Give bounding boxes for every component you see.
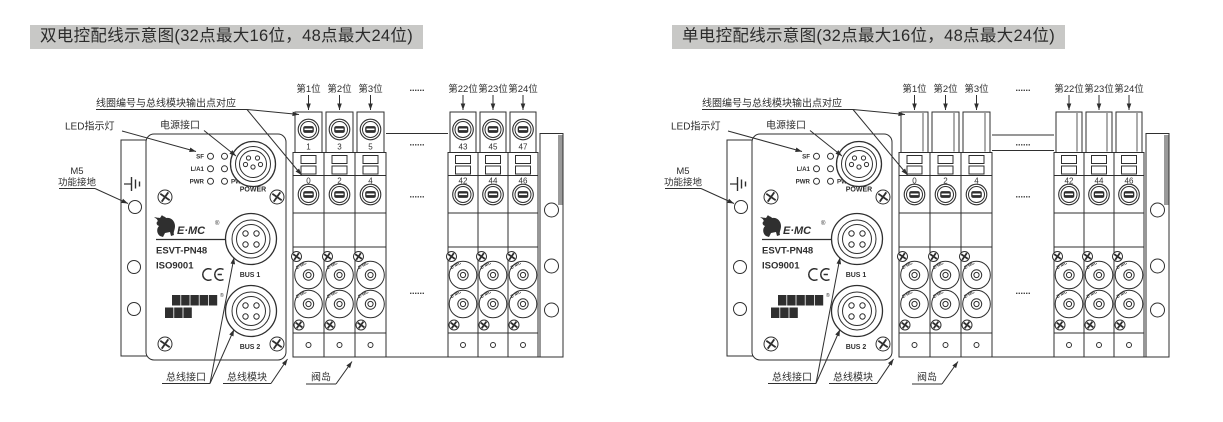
continuation-dots: ...... [1015,286,1030,296]
logo-letter: O [798,298,804,305]
station-coil-number-top: 47 [519,143,528,152]
diagram-title-single: 单电控配线示意图(32点最大16位，48点最大24位) [672,25,1065,49]
screw-icon [294,320,304,330]
manual-override-connector [1059,184,1080,205]
indicator-window [1122,166,1137,174]
bus-module: SFBFL/A1L/A2PWRPWMPOWERE·MC®ESVT-PN48ISO… [121,134,286,360]
manual-override-connector [360,184,381,205]
arrow-head [912,104,917,111]
page: 双电控配线示意图(32点最大16位，48点最大24位) 单电控配线示意图(32点… [0,0,1223,422]
screw-icon [1085,320,1095,330]
end-plate-hole [545,303,559,317]
logo-letter: F [202,298,207,305]
mounting-strip [899,333,992,357]
fieldbus-logo-word: PROFI [172,295,217,306]
indicator-window [332,166,347,174]
led-label-left: SF [196,154,204,161]
screw-icon [270,337,284,351]
screw-icon [158,337,172,351]
logo-letter: E [176,311,181,318]
station-coil-number-top: 43 [459,143,468,152]
coil-note-leader [247,110,299,115]
indicator-window [938,156,953,164]
screw-icon [354,252,364,262]
screw-icon [764,337,778,351]
screw-icon [477,252,487,262]
bus-module: SFBFL/A1L/A2PWRPWMPOWERE·MC®ESVT-PN48ISO… [727,134,892,360]
position-label-row: 第1位第2位第3位......第22位第23位第24位 [296,83,538,110]
screw-icon [356,320,366,330]
manual-override-connector [329,184,350,205]
circle [231,142,276,187]
screw-icon [900,320,910,330]
bracket-hole [128,303,141,316]
arrow-head [888,359,894,366]
circle [837,142,882,187]
indicator-window [486,166,501,174]
manual-override-connector [483,119,504,140]
arrow-head [1067,104,1072,111]
bracket-hole [128,261,141,274]
logo-letter: T [791,311,796,318]
led-label-left: PWR [796,179,811,186]
position-label: 第1位 [296,83,321,95]
brand-logo-text: E·MC [783,225,812,237]
bus-label: BUS 1 [846,272,867,279]
screw-icon [509,320,519,330]
bus2-connector [226,286,277,337]
valve-tower [963,112,990,153]
model-label: ESVT-PN48 [762,246,813,257]
mounting-bracket [727,140,754,356]
circle [832,286,883,337]
power-connector [837,142,882,187]
logo-letter: P [780,298,785,305]
logo-letter: R [183,298,188,305]
position-label: 第24位 [1114,83,1144,95]
screw-icon [764,190,778,204]
screw-icon [292,252,302,262]
logo-letter: E [782,311,787,318]
fieldbus-logo-word: NET [165,308,192,319]
valve-tower [901,112,928,153]
mounting-strip [448,333,538,357]
station-coil-number-top: 45 [489,143,498,152]
power-connector [231,142,276,187]
station-coil-number-top: 1 [306,143,311,152]
position-label: 第23位 [1084,83,1114,95]
m5-callout-label: M5 [676,166,689,177]
valve-tower [932,112,959,153]
manual-override-connector [453,119,474,140]
manual-override-connector [904,184,925,205]
valve-island-callout-label: 阀岛 [311,371,331,384]
end-plate-shade [558,135,563,205]
bus1-connector [832,214,883,265]
position-label: 第22位 [448,83,478,95]
indicator-window [516,156,531,164]
indicator-window [907,156,922,164]
manual-override-connector [513,119,534,140]
end-plate-hole [1151,259,1165,273]
diagram-title-dual: 双电控配线示意图(32点最大16位，48点最大24位) [30,25,423,49]
arrow-head [368,104,373,111]
arrow-head [337,104,342,111]
fieldbus-reg-mark: ® [826,292,830,299]
indicator-window [363,166,378,174]
indicator-window [1122,156,1137,164]
manual-override-connector [483,184,504,205]
m5-callout-label2: 功能接地 [664,177,703,189]
m5-callout-label2: 功能接地 [58,177,97,189]
continuation-dots: ...... [409,190,424,200]
manual-override-connector [329,119,350,140]
screw-icon [1083,252,1093,262]
bus-label: BUS 1 [240,272,261,279]
led-label-left: L/A1 [797,166,811,173]
manual-override-connector [298,119,319,140]
screw-icon [449,320,459,330]
led-label-left: PWR [190,179,205,186]
logo-letter: R [789,298,794,305]
screw-icon [479,320,489,330]
position-label: 第24位 [508,83,538,95]
position-label: 第3位 [358,83,383,95]
screw-icon [960,252,970,262]
end-plate [1146,134,1169,358]
m5-ground-hole [735,201,748,214]
indicator-window [907,166,922,174]
continuation-dots: ...... [1015,138,1030,148]
bus1-connector [226,214,277,265]
wiring-diagram-single: ..................0E·MCE·MC2E·MCE·MC4E·M… [606,55,1218,422]
screw-icon [1055,320,1065,330]
circle [226,286,277,337]
screw-icon [1115,320,1125,330]
arrow-head [974,104,979,111]
indicator-window [1092,156,1107,164]
cert-label: ISO9001 [156,261,194,272]
coil-note-leader [853,110,905,115]
position-label: 第2位 [933,83,958,95]
manual-override-connector [966,184,987,205]
led-callout-label: LED指示灯 [671,120,720,133]
led-label-left: L/A1 [191,166,205,173]
position-label: 第3位 [964,83,989,95]
arrow-head [1127,104,1132,111]
indicator-window [1062,156,1077,164]
screw-icon [929,252,939,262]
position-label-row: 第1位第2位第3位......第22位第23位第24位 [902,83,1144,110]
continuation-dots: ...... [1015,83,1030,93]
screw-icon [876,337,890,351]
logo-letter: O [192,298,198,305]
mounting-strip [293,333,386,357]
led-callout-label: LED指示灯 [65,120,114,133]
manual-override-connector [1119,184,1140,205]
screw-icon [931,320,941,330]
screw-icon [158,190,172,204]
bus-port-callout-label: 总线接口 [772,371,812,384]
station-coil-number-top: 5 [368,143,373,152]
arrow-head [521,104,526,111]
screw-icon [898,252,908,262]
station-coil-number-top: 3 [337,143,342,152]
bus-port-callout-label: 总线接口 [166,371,206,384]
indicator-window [456,156,471,164]
circle [226,214,277,265]
position-label: 第23位 [478,83,508,95]
mounting-strip [1054,333,1144,357]
continuation-dots: ...... [1015,190,1030,200]
position-label: 第1位 [902,83,927,95]
arrow-head [306,104,311,111]
arrow-head [461,104,466,111]
arrow-head [1097,104,1102,111]
fieldbus-reg-mark: ® [220,292,224,299]
indicator-window [1062,166,1077,174]
indicator-window [301,166,316,174]
arrow-head [943,104,948,111]
screw-icon [325,320,335,330]
arrow-head [282,359,288,366]
arrow-head [491,104,496,111]
bracket-hole [734,261,747,274]
end-plate-shade [1164,135,1169,205]
continuation-dots: ...... [409,286,424,296]
valve-tower [1086,112,1112,153]
bracket-hole [734,303,747,316]
fieldbus-logo-word: NET [771,308,798,319]
m5-callout-label: M5 [70,166,83,177]
bus-module-callout-label: 总线模块 [833,371,873,384]
model-label: ESVT-PN48 [156,246,207,257]
indicator-window [969,166,984,174]
valve-tower [1116,112,1142,153]
bus2-connector [832,286,883,337]
power-callout-label: 电源接口 [766,119,806,132]
screw-icon [1113,252,1123,262]
end-plate-hole [1151,303,1165,317]
bus-label: BUS 2 [240,344,261,351]
manual-override-connector [513,184,534,205]
logo-letter: T [185,311,190,318]
valve-island-callout-label: 阀岛 [917,371,937,384]
brand-reg-mark: ® [215,220,220,227]
mounting-bracket [121,140,148,356]
end-plate [540,134,563,358]
continuation-dots: ...... [409,83,424,93]
brand-logo-text: E·MC [177,225,206,237]
screw-icon [270,190,284,204]
manual-override-connector [453,184,474,205]
indicator-window [969,156,984,164]
logo-letter: P [174,298,179,305]
position-label: 第22位 [1054,83,1084,95]
indicator-window [486,156,501,164]
indicator-window [938,166,953,174]
end-plate-hole [545,259,559,273]
bus-label: BUS 2 [846,344,867,351]
power-callout-label: 电源接口 [160,119,200,132]
continuation-dots: ...... [409,138,424,148]
valve-tower [1056,112,1082,153]
indicator-window [516,166,531,174]
coil-note-label: 线圈编号与总线模块输出点对应 [702,97,842,110]
logo-letter: F [808,298,813,305]
arrow-head [952,362,958,369]
manual-override-connector [298,184,319,205]
brand-reg-mark: ® [821,220,826,227]
power-label: POWER [846,187,872,194]
power-label: POWER [240,187,266,194]
cert-label: ISO9001 [762,261,800,272]
end-plate-hole [545,203,559,217]
indicator-window [456,166,471,174]
bus-module-callout-label: 总线模块 [227,371,267,384]
manual-override-connector [360,119,381,140]
end-plate-hole [1151,203,1165,217]
arrow-head [346,362,352,369]
screw-icon [507,252,517,262]
wiring-diagram-dual: ..................10E·MCE·MC32E·MCE·MC54… [0,55,600,422]
screw-icon [323,252,333,262]
manual-override-connector [1089,184,1110,205]
screw-icon [876,190,890,204]
screw-icon [447,252,457,262]
indicator-window [332,156,347,164]
led-label-left: SF [802,154,810,161]
screw-icon [962,320,972,330]
indicator-window [1092,166,1107,174]
coil-note-label: 线圈编号与总线模块输出点对应 [96,97,236,110]
position-label: 第2位 [327,83,352,95]
screw-icon [1053,252,1063,262]
m5-ground-hole [129,201,142,214]
manual-override-connector [935,184,956,205]
fieldbus-logo-word: PROFI [778,295,823,306]
indicator-window [363,156,378,164]
circle [832,214,883,265]
indicator-window [301,156,316,164]
